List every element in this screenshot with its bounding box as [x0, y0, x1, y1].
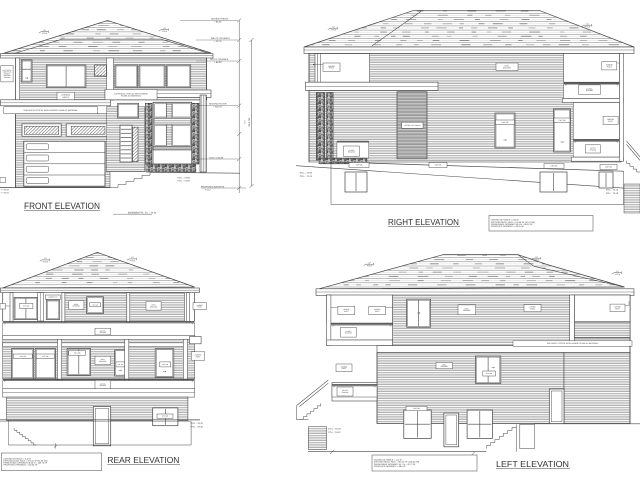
svg-text:SHOWN: SHOWN — [4, 76, 11, 79]
svg-text:PITCH: PITCH — [43, 260, 49, 263]
svg-text:CAC GB: CAC GB — [559, 119, 567, 122]
svg-text:PITCH: PITCH — [42, 32, 48, 35]
svg-text:PITCH: PITCH — [615, 273, 621, 276]
svg-text:CAP GB: CAP GB — [356, 164, 364, 167]
svg-text:CAP GB: CAP GB — [605, 166, 613, 169]
svg-text:74.12: 74.12 — [205, 188, 211, 191]
svg-text:DECKING: DECKING — [503, 66, 512, 69]
svg-text:CAC GB: CAC GB — [502, 121, 510, 124]
svg-text:2X6 FASCIA TYPICAL WITH HARDIE: 2X6 FASCIA TYPICAL WITH HARDIE PLANK AS … — [547, 342, 598, 345]
svg-text:PROPOSED OPENINGS = 202.64 SF: PROPOSED OPENINGS = 202.64 SF — [3, 464, 38, 467]
svg-text:+ 202.78: + 202.78 — [213, 106, 222, 109]
svg-text:POST: POST — [342, 367, 347, 370]
svg-text:PITCH: PITCH — [130, 259, 136, 262]
svg-text:CAP GB: CAP GB — [551, 165, 559, 168]
svg-text:PG.L : 74.10: PG.L : 74.10 — [606, 192, 619, 195]
svg-text:PG.L : 74.24: PG.L : 74.24 — [300, 175, 313, 178]
svg-text:EG.L : 74.94: EG.L : 74.94 — [178, 176, 191, 179]
svg-text:+/- TRUS: +/- TRUS — [1, 189, 10, 192]
svg-text:SECOND FLOOR: SECOND FLOOR — [209, 103, 227, 106]
svg-text:+ 217.6: + 217.6 — [214, 40, 222, 43]
svg-text:CAP GB: CAP GB — [435, 164, 443, 167]
svg-text:RAILING: RAILING — [586, 89, 594, 92]
svg-text:EG.L : 78.70: EG.L : 78.70 — [191, 422, 204, 425]
svg-text:RAILING: RAILING — [348, 151, 355, 154]
svg-text:PITCH: PITCH — [367, 265, 373, 268]
svg-text:EG.L : 78.70: EG.L : 78.70 — [328, 428, 341, 431]
svg-text:RAILING: RAILING — [342, 391, 349, 394]
svg-text:PITCH: PITCH — [534, 259, 540, 262]
svg-text:LEFT ELEVATION: LEFT ELEVATION — [496, 459, 569, 469]
svg-text:POST: POST — [196, 356, 201, 359]
svg-text:CAC GB: CAC GB — [42, 355, 49, 358]
svg-text:PG.L : 78.40: PG.L : 78.40 — [191, 425, 204, 428]
svg-text:FRONT ELEVATION: FRONT ELEVATION — [24, 201, 100, 211]
svg-text:+ 88.29: + 88.29 — [214, 21, 222, 24]
svg-text:PITCH: PITCH — [331, 29, 337, 32]
svg-text:PROPOSED OPENINGS = 59.15 SF: PROPOSED OPENINGS = 59.15 SF — [491, 225, 525, 228]
svg-text:PITCH: PITCH — [162, 30, 168, 33]
svg-text:+ 88.29: + 88.29 — [214, 61, 222, 64]
svg-text:28'-6 7/8": 28'-6 7/8" — [248, 117, 251, 126]
svg-text:HARDIE LAP SIDING: HARDIE LAP SIDING — [404, 124, 421, 127]
svg-text:PLANK AS MATERIAL: PLANK AS MATERIAL — [121, 94, 142, 97]
svg-text:POST: POST — [615, 307, 620, 310]
svg-text:POST: POST — [344, 310, 349, 313]
svg-text:PROPOSED OPENINGS = 64.9 SF: PROPOSED OPENINGS = 64.9 SF — [374, 465, 407, 468]
svg-text:+/- TRUS: +/- TRUS — [1, 192, 10, 195]
svg-text:EG.L : 74.94: EG.L : 74.94 — [300, 172, 313, 175]
svg-text:CAC GB: CAC GB — [74, 352, 81, 355]
svg-text:CAC GB: CAC GB — [19, 355, 26, 358]
svg-text:CAC GB: CAC GB — [413, 407, 420, 410]
svg-text:RAILING: RAILING — [345, 332, 352, 335]
svg-text:MID OF TRUSSES: MID OF TRUSSES — [211, 37, 230, 40]
svg-text:HATCH: HATCH — [62, 96, 69, 99]
svg-text:PITCH: PITCH — [585, 26, 591, 29]
svg-text:HIGHEST RIDGE: HIGHEST RIDGE — [211, 18, 229, 21]
svg-text:PG.L : 78.42: PG.L : 78.42 — [328, 431, 341, 434]
svg-text:POST: POST — [375, 310, 380, 313]
svg-text:EG.L : 74.10: EG.L : 74.10 — [606, 189, 619, 192]
svg-text:U/S OF TRUSSES: U/S OF TRUSSES — [210, 58, 229, 61]
svg-text:CAC GB: CAC GB — [118, 364, 123, 366]
svg-text:RIGHT ELEVATION: RIGHT ELEVATION — [388, 217, 459, 227]
svg-text:2X6 FASCIA TYPICAL WITH HARDIE: 2X6 FASCIA TYPICAL WITH HARDIE PLANK AS … — [23, 109, 78, 112]
svg-text:PG.L : 74.94: PG.L : 74.94 — [178, 179, 191, 182]
svg-text:BASEMENT FL. EL = 73.42: BASEMENT FL. EL = 73.42 — [128, 211, 157, 214]
svg-text:REAR ELEVATION: REAR ELEVATION — [107, 455, 179, 465]
